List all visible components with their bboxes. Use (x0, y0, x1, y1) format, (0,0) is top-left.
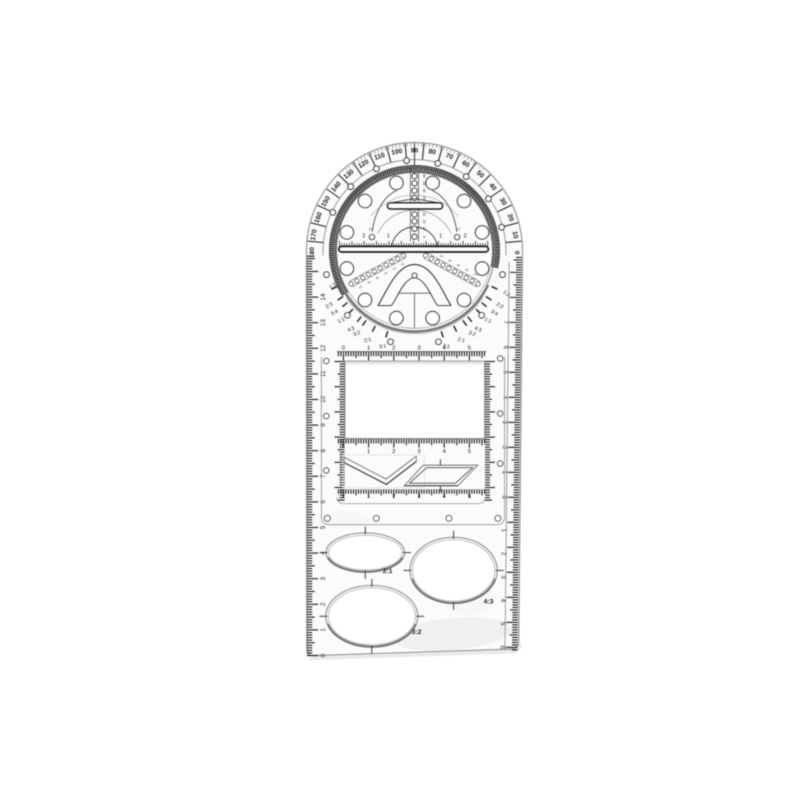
svg-text:13: 13 (320, 319, 327, 327)
svg-text:5: 5 (468, 494, 471, 500)
svg-text:2: 2 (320, 602, 327, 606)
svg-text:10: 10 (422, 227, 426, 231)
svg-text:20: 20 (422, 213, 426, 217)
svg-text:17: 17 (457, 228, 461, 232)
svg-text:7: 7 (502, 321, 509, 325)
svg-text:1: 1 (501, 471, 508, 475)
svg-text:2: 2 (362, 233, 365, 239)
svg-text:1: 1 (387, 233, 390, 239)
svg-text:25: 25 (422, 196, 426, 200)
svg-text:1: 1 (439, 233, 442, 239)
svg-text:5: 5 (499, 622, 506, 626)
svg-text:6: 6 (502, 346, 509, 350)
svg-text:15: 15 (422, 220, 426, 224)
svg-text:14: 14 (320, 293, 327, 301)
svg-text:1: 1 (367, 449, 370, 455)
svg-text:6: 6 (499, 645, 506, 649)
svg-text:0: 0 (320, 653, 327, 657)
svg-text:4: 4 (499, 599, 506, 603)
svg-text:17: 17 (369, 228, 373, 232)
svg-text:2: 2 (392, 345, 395, 351)
svg-text:2:1: 2:1 (383, 568, 393, 575)
svg-text:1: 1 (500, 528, 507, 532)
svg-text:3: 3 (499, 575, 506, 579)
svg-text:2: 2 (464, 233, 467, 239)
svg-text:2: 2 (500, 552, 507, 556)
svg-text:4:3: 4:3 (484, 598, 494, 605)
svg-text:0: 0 (513, 251, 520, 255)
svg-text:2: 2 (392, 494, 395, 500)
svg-text:1: 1 (320, 628, 327, 632)
svg-text:40: 40 (422, 174, 426, 178)
svg-text:5: 5 (502, 371, 509, 375)
svg-text:5: 5 (422, 236, 426, 238)
svg-text:2: 2 (392, 449, 395, 455)
svg-text:3:1: 3:1 (379, 343, 387, 350)
svg-text:30: 30 (422, 189, 426, 193)
svg-text:3: 3 (417, 494, 420, 500)
svg-text:1: 1 (367, 494, 370, 500)
svg-text:4: 4 (443, 494, 446, 500)
svg-text:80: 80 (428, 148, 437, 156)
svg-text:10: 10 (511, 231, 519, 240)
svg-text:35: 35 (422, 181, 426, 185)
svg-text:12: 12 (320, 344, 327, 352)
svg-text:5: 5 (320, 525, 327, 529)
svg-text:1: 1 (367, 345, 370, 351)
svg-text:3:2: 3:2 (412, 629, 422, 636)
svg-text:0: 0 (500, 496, 507, 500)
svg-text:3: 3 (320, 576, 327, 580)
